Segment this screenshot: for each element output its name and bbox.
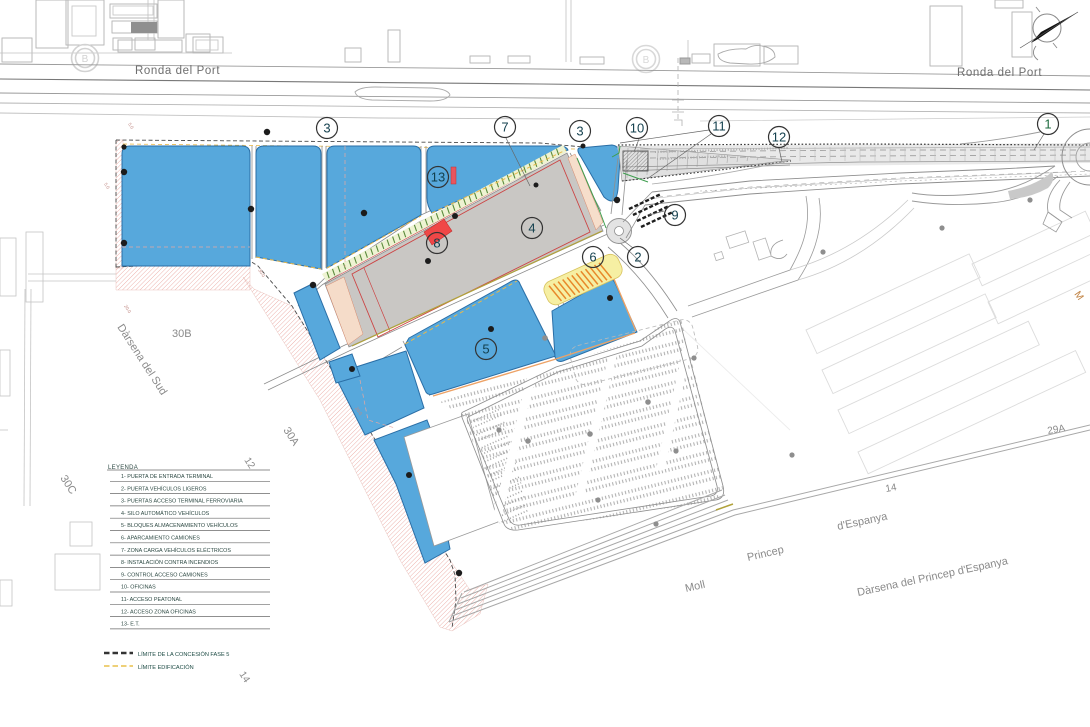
svg-text:30B: 30B	[172, 328, 192, 340]
svg-text:8- INSTALACIÓN CONTRA INCENDIO: 8- INSTALACIÓN CONTRA INCENDIOS	[121, 559, 219, 566]
svg-text:3: 3	[323, 121, 330, 136]
svg-text:10- OFICINAS: 10- OFICINAS	[121, 585, 156, 591]
svg-text:2: 2	[634, 250, 641, 265]
svg-text:7: 7	[501, 120, 508, 135]
svg-text:12: 12	[772, 130, 786, 145]
svg-text:1- PUERTA DE ENTRADA TERMINAL: 1- PUERTA DE ENTRADA TERMINAL	[121, 474, 213, 480]
svg-text:11- ACCESO PEATONAL: 11- ACCESO PEATONAL	[121, 597, 182, 603]
svg-text:B: B	[82, 54, 89, 65]
svg-text:8: 8	[433, 236, 440, 251]
svg-text:3- PUERTAS ACCESO TERMINAL FER: 3- PUERTAS ACCESO TERMINAL FERROVIARIA	[121, 499, 243, 505]
svg-text:Ronda del Port: Ronda del Port	[135, 65, 220, 77]
svg-text:B: B	[643, 55, 650, 66]
svg-text:12- ACCESO ZONA OFICINAS: 12- ACCESO ZONA OFICINAS	[121, 609, 196, 615]
svg-text:9- CONTROL ACCESO CAMIONES: 9- CONTROL ACCESO CAMIONES	[121, 572, 208, 578]
svg-text:3: 3	[576, 124, 583, 139]
svg-text:4: 4	[528, 221, 535, 236]
svg-text:5- BLOQUES ALMACENAMIENTO VEHÍ: 5- BLOQUES ALMACENAMIENTO VEHÍCULOS	[121, 522, 238, 529]
svg-text:1: 1	[1044, 117, 1051, 132]
svg-text:9: 9	[671, 208, 678, 223]
svg-text:6- APARCAMIENTO CAMIONES: 6- APARCAMIENTO CAMIONES	[121, 536, 200, 542]
svg-text:13- E.T.: 13- E.T.	[121, 622, 140, 628]
svg-text:10: 10	[630, 121, 644, 136]
svg-text:11: 11	[712, 119, 726, 134]
svg-text:4- SILO AUTOMÁTICO VEHÍCULOS: 4- SILO AUTOMÁTICO VEHÍCULOS	[121, 510, 210, 517]
svg-text:5: 5	[482, 342, 489, 357]
svg-text:2- PUERTA VEHÍCULOS LIGEROS: 2- PUERTA VEHÍCULOS LIGEROS	[121, 485, 207, 492]
svg-text:Ronda del Port: Ronda del Port	[957, 67, 1042, 79]
svg-text:13: 13	[431, 170, 445, 185]
svg-text:6: 6	[589, 250, 596, 265]
svg-text:7- ZONA CARGA VEHÍCULOS ELÉCTR: 7- ZONA CARGA VEHÍCULOS ELÉCTRICOS	[121, 547, 231, 554]
svg-text:LÍMITE DE LA CONCESIÓN FASE 5: LÍMITE DE LA CONCESIÓN FASE 5	[138, 651, 229, 658]
svg-text:LÍMITE EDIFICACIÓN: LÍMITE EDIFICACIÓN	[138, 664, 194, 671]
